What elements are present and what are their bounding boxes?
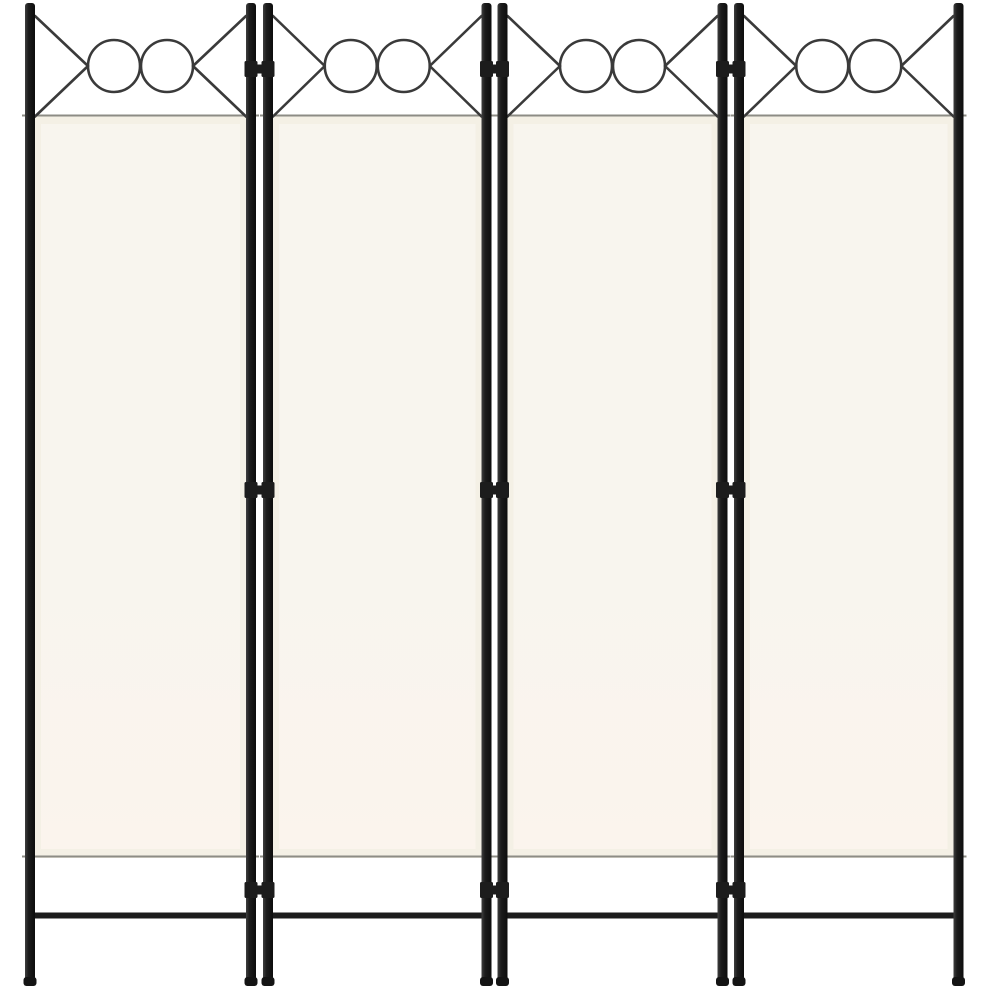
pole-foot bbox=[496, 977, 509, 986]
hinge-sleeve bbox=[733, 61, 746, 77]
hinge-sleeve bbox=[496, 882, 509, 898]
bottom-stretcher-bar bbox=[503, 913, 723, 919]
divider-panel-1 bbox=[22, 3, 259, 986]
hinge-sleeve bbox=[716, 882, 729, 898]
hinge-sleeve bbox=[480, 882, 493, 898]
hinge-sleeve bbox=[733, 882, 746, 898]
fabric-inner bbox=[514, 124, 712, 849]
hinge-sleeve bbox=[716, 482, 729, 498]
pole-foot bbox=[716, 977, 729, 986]
hinge-sleeve bbox=[733, 482, 746, 498]
pole-foot bbox=[245, 977, 258, 986]
hinge-sleeve bbox=[262, 61, 275, 77]
fabric-inner bbox=[750, 124, 948, 849]
divider-panel-2 bbox=[260, 3, 495, 986]
pole-foot bbox=[952, 977, 965, 986]
hinge-sleeve bbox=[496, 482, 509, 498]
fabric-inner bbox=[279, 124, 476, 849]
pole-foot bbox=[733, 977, 746, 986]
room-divider-illustration bbox=[0, 0, 992, 992]
bottom-stretcher-bar bbox=[739, 913, 959, 919]
pole-foot bbox=[480, 977, 493, 986]
pole-foot bbox=[262, 977, 275, 986]
divider-panel-4 bbox=[731, 3, 967, 986]
hinge-sleeve bbox=[480, 482, 493, 498]
frame-pole bbox=[954, 3, 964, 985]
hinge-sleeve bbox=[262, 482, 275, 498]
hinge-sleeve bbox=[262, 882, 275, 898]
hinge-sleeve bbox=[245, 882, 258, 898]
pole-foot bbox=[24, 977, 37, 986]
hinge-sleeve bbox=[245, 61, 258, 77]
product-image-room-divider bbox=[0, 0, 992, 992]
hinge-sleeve bbox=[716, 61, 729, 77]
bottom-stretcher-bar bbox=[30, 913, 251, 919]
hinge-sleeve bbox=[245, 482, 258, 498]
bottom-stretcher-bar bbox=[268, 913, 487, 919]
hinge-sleeve bbox=[496, 61, 509, 77]
frame-pole bbox=[25, 3, 35, 985]
hinge-sleeve bbox=[480, 61, 493, 77]
fabric-inner bbox=[41, 124, 240, 849]
divider-panel-3 bbox=[495, 3, 731, 986]
